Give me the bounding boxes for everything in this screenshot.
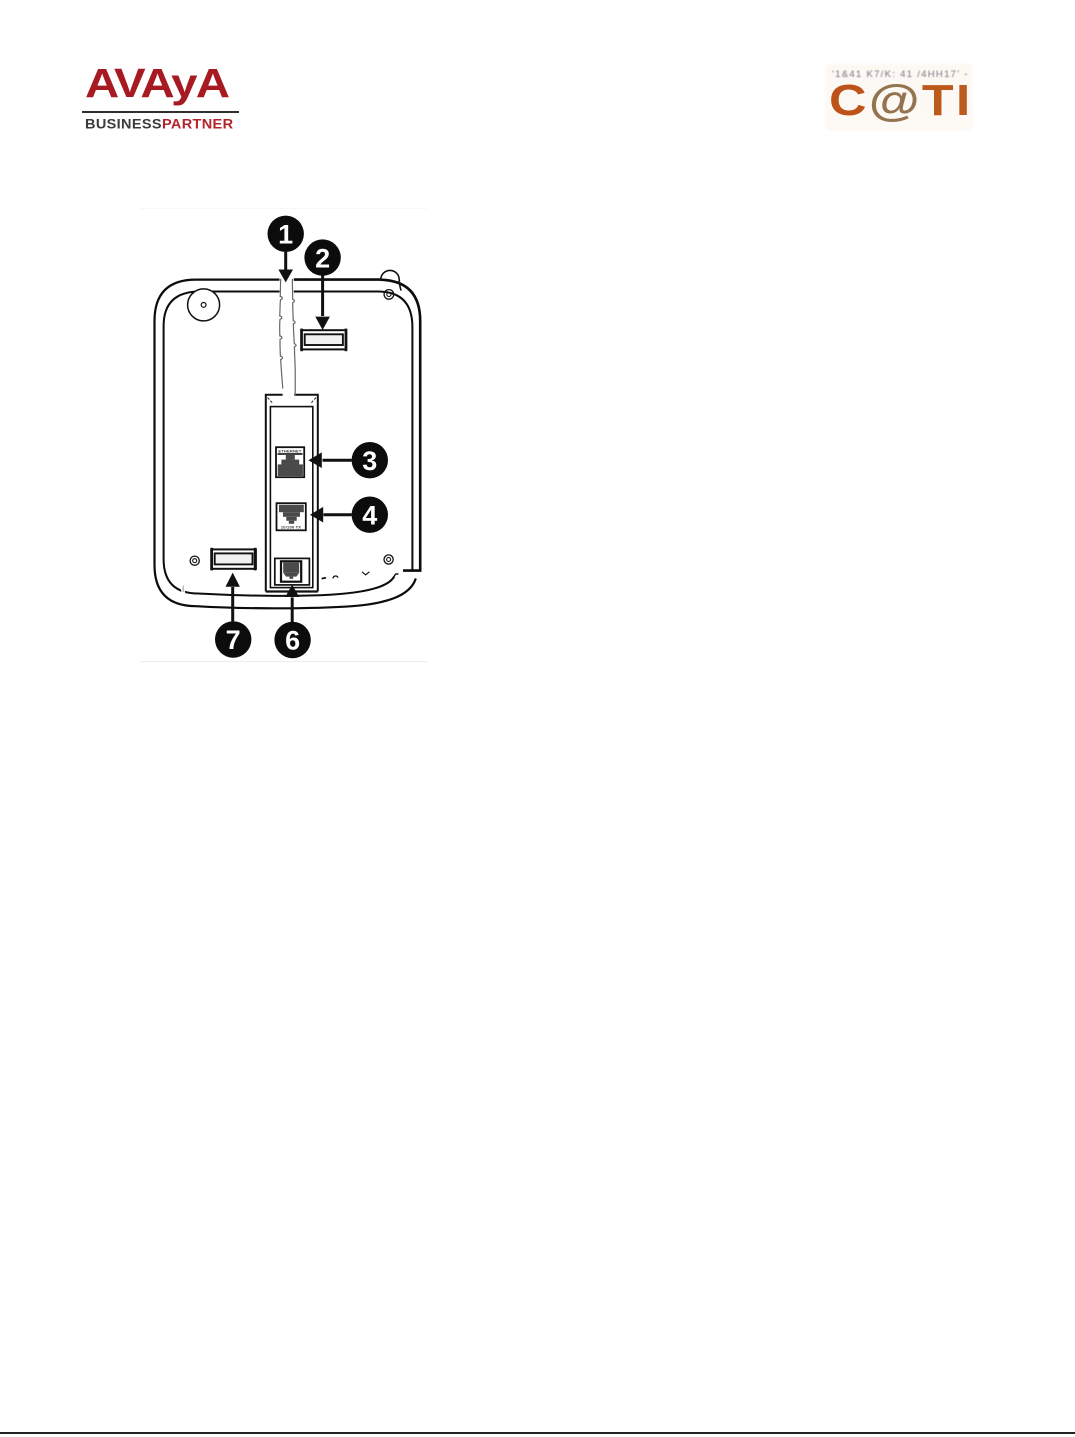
svg-text:2: 2 xyxy=(315,243,330,273)
svg-text:6: 6 xyxy=(285,626,300,656)
svg-text:4: 4 xyxy=(362,501,377,531)
svg-text:ETHERNET: ETHERNET xyxy=(278,449,302,454)
svg-text:7: 7 xyxy=(226,625,241,655)
svg-text:3: 3 xyxy=(362,446,377,476)
svg-text:10/100 TX: 10/100 TX xyxy=(281,525,301,530)
svg-text:1: 1 xyxy=(278,220,293,250)
